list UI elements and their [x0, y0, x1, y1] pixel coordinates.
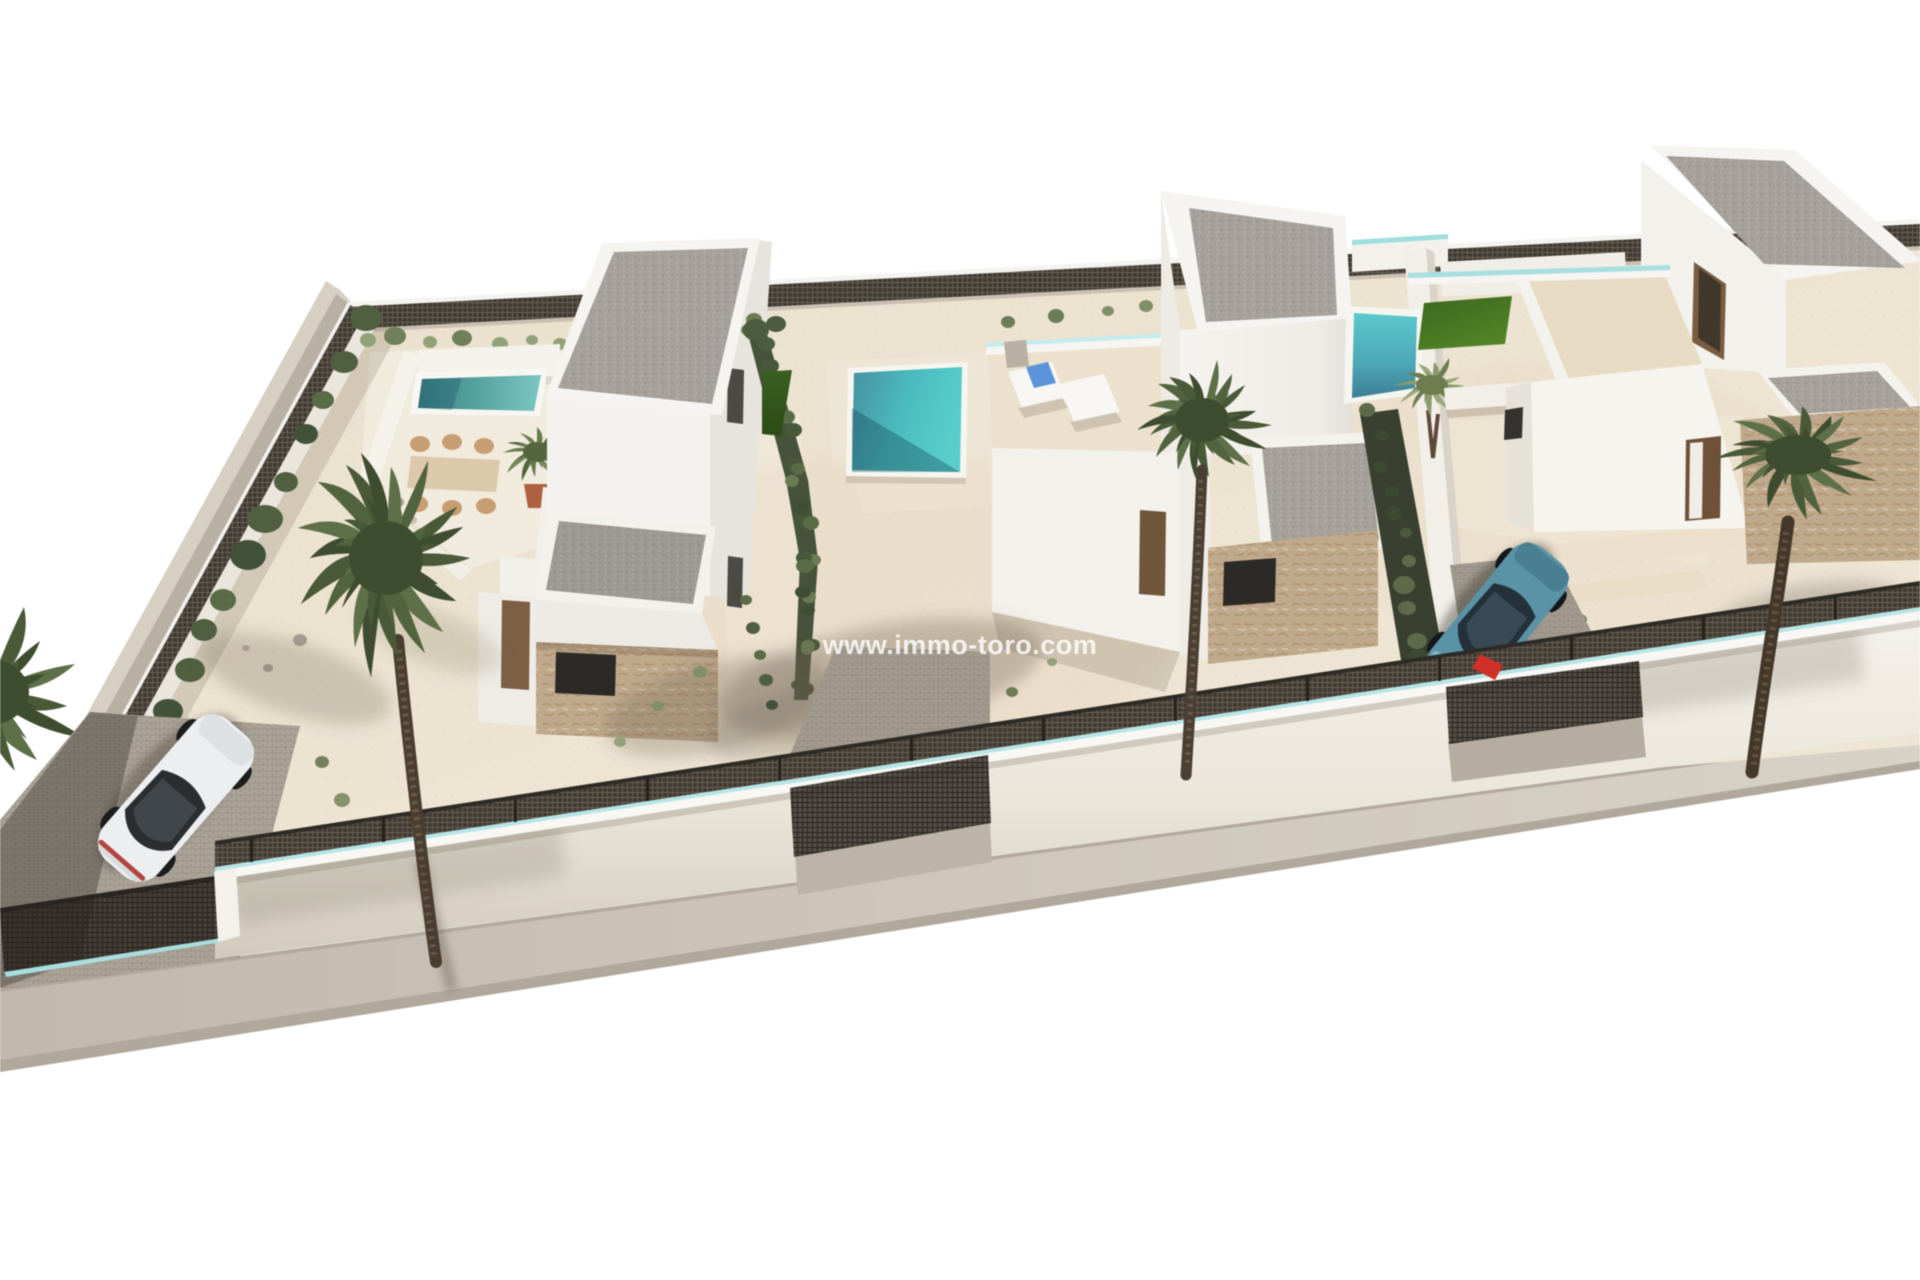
svg-text:www.immo-toro.com: www.immo-toro.com	[822, 630, 1098, 660]
